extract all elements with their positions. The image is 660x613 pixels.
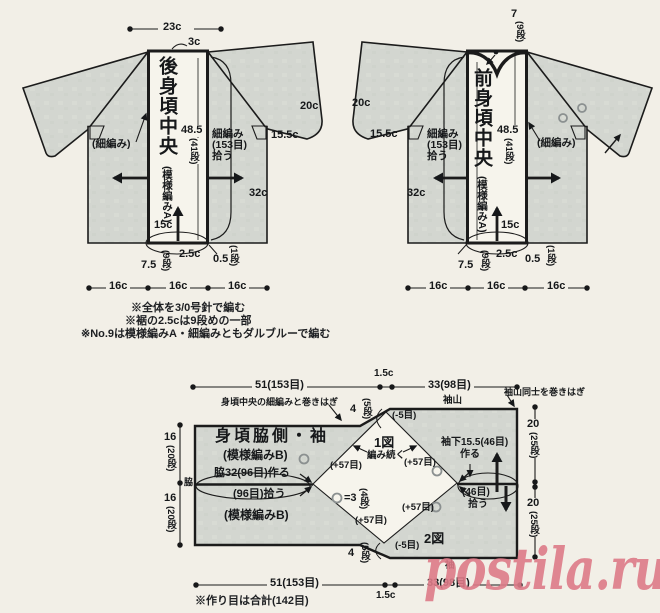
back-3c-curve bbox=[172, 44, 187, 49]
legend-equals: =3 bbox=[344, 493, 357, 505]
back-dim-32c: 32c bbox=[249, 188, 267, 200]
front-rows-1: (1段) bbox=[545, 245, 555, 266]
lower-rows16-2: 16 (20段) bbox=[161, 493, 179, 532]
legend-rows: (4段) bbox=[358, 488, 368, 509]
lower-rows20-2: 20 (25段) bbox=[524, 498, 542, 537]
front-sc-label: (細編み) bbox=[537, 138, 576, 149]
front-dim-32c: 32c bbox=[407, 188, 425, 200]
lower-step4-bottom-value: 4 bbox=[348, 548, 354, 560]
front-dim-16c-3: 16c bbox=[544, 281, 568, 293]
pattern-page: 23c 3c 後身頃中央 (模様編みA) 48.5 (41段) 細編み (153… bbox=[0, 0, 660, 613]
lower-minus5-bottom: (-5目) bbox=[395, 541, 419, 551]
front-length-rows: (41段) bbox=[501, 138, 515, 164]
note-3: ※No.9は模様編みA・細編みともダルブルーで編む bbox=[81, 329, 330, 341]
back-dim-20c: 20c bbox=[300, 101, 318, 113]
lower-plus57-tl: (+57目) bbox=[330, 461, 362, 471]
front-dim-16c-1: 16c bbox=[426, 281, 450, 293]
back-pickup-label: 細編み (153目) 拾う bbox=[212, 129, 247, 162]
front-title: 前身頃中央 bbox=[471, 68, 491, 168]
back-title: 後身頃中央 bbox=[156, 56, 176, 156]
schematic-linework bbox=[0, 0, 660, 613]
front-pattern-label: (模様編みA) bbox=[476, 176, 487, 233]
lower-pattern-top: (模様編みB) bbox=[223, 449, 288, 462]
lower-sleeve-under-2: 作る bbox=[460, 450, 480, 461]
back-length-value: 48.5 bbox=[179, 125, 204, 137]
lower-step4-bottom-rows: (5段) bbox=[359, 542, 369, 563]
lower-dim-top-33: 33(98目) bbox=[425, 380, 474, 392]
lower-plus57-br: (+57目) bbox=[402, 503, 434, 513]
back-dim-25c: 2.5c bbox=[179, 249, 200, 261]
lower-sodeyama-join: 袖山同士を巻きはぎ bbox=[504, 388, 585, 397]
back-dim-16c-2: 16c bbox=[166, 281, 190, 293]
front-neck-dot bbox=[494, 50, 499, 55]
front-neck-value: 7 bbox=[511, 9, 517, 21]
front-dim-155c: 15.5c bbox=[370, 129, 398, 141]
lower-minus5-top: (-5目) bbox=[392, 411, 416, 421]
back-length-rows: (41段) bbox=[186, 138, 200, 164]
front-dim-05: 0.5 bbox=[525, 254, 540, 266]
back-sc-label: (細編み) bbox=[92, 139, 131, 150]
watermark-postila: postila.ru bbox=[424, 540, 660, 598]
front-dim-75: 7.5 bbox=[458, 260, 473, 272]
lower-pick46-2: 拾う bbox=[468, 500, 488, 511]
lower-waki: 脇 bbox=[184, 478, 193, 487]
front-dim-16c-2: 16c bbox=[484, 281, 508, 293]
front-hem-tick bbox=[458, 245, 466, 254]
lower-plus57-tr: (+57目) bbox=[404, 458, 436, 468]
note-2: ※裾の2.5cは9段めの一部 bbox=[125, 316, 252, 328]
front-rows-9: (9段) bbox=[479, 250, 489, 271]
lower-step4-top-rows: (5段) bbox=[361, 398, 371, 419]
lower-sodeyama: 袖山 bbox=[443, 396, 462, 406]
lower-dim-bot-15c: 1.5c bbox=[376, 591, 395, 602]
lower-fig1: 1図 bbox=[374, 436, 394, 450]
lower-pattern-bottom: (模様編みB) bbox=[224, 509, 289, 522]
back-dim-155c: 15.5c bbox=[271, 130, 299, 142]
lower-title: 身頃脇側・袖 bbox=[215, 429, 329, 446]
back-rows-9: (9段) bbox=[160, 250, 170, 271]
lower-rows20-1: 20 (25段) bbox=[524, 419, 542, 458]
lower-dim-top-15c: 1.5c bbox=[374, 369, 393, 380]
back-pattern-label: (模様編みA) bbox=[161, 166, 172, 223]
lower-side-pick: (96目)拾う bbox=[233, 489, 286, 501]
lower-dim-bot-51: 51(153目) bbox=[267, 578, 322, 590]
front-length-value: 48.5 bbox=[495, 125, 520, 137]
front-pickup-label: 細編み (153目) 拾う bbox=[427, 129, 462, 162]
front-dim-20c: 20c bbox=[352, 98, 370, 110]
lower-step4-top-value: 4 bbox=[350, 404, 356, 416]
lower-rows16-1: 16 (20段) bbox=[161, 432, 179, 471]
back-dim-16c-3: 16c bbox=[225, 281, 249, 293]
back-dim-16c-1: 16c bbox=[106, 281, 130, 293]
lower-plus57-bl: (+57目) bbox=[355, 516, 387, 526]
back-dim-3c: 3c bbox=[188, 37, 200, 49]
lower-side-make: 脇32(96目)作る bbox=[214, 468, 290, 480]
lower-cast-on-note: ※作り目は合計(142目) bbox=[195, 596, 309, 608]
lower-center-join: 身頃中央の細編みと巻きはぎ bbox=[221, 398, 338, 407]
front-neck-rows: (9段) bbox=[514, 21, 524, 42]
lower-pick46-1: (46目) bbox=[462, 488, 490, 499]
back-rows-1: (1段) bbox=[228, 245, 238, 266]
back-dim-23c: 23c bbox=[160, 22, 184, 34]
back-dim-75: 7.5 bbox=[141, 260, 156, 272]
front-dim-25c: 2.5c bbox=[496, 249, 517, 261]
note-1: ※全体を3/0号針で編む bbox=[131, 303, 245, 315]
lower-dim-top-51: 51(153目) bbox=[252, 380, 307, 392]
back-dim-15c: 15c bbox=[154, 220, 172, 232]
back-dim-05: 0.5 bbox=[213, 254, 228, 266]
front-dim-15c: 15c bbox=[501, 220, 519, 232]
lower-sleeve-under-1: 袖下15.5(46目) bbox=[441, 438, 508, 449]
lower-knit-cont: 編み続く bbox=[367, 451, 405, 461]
